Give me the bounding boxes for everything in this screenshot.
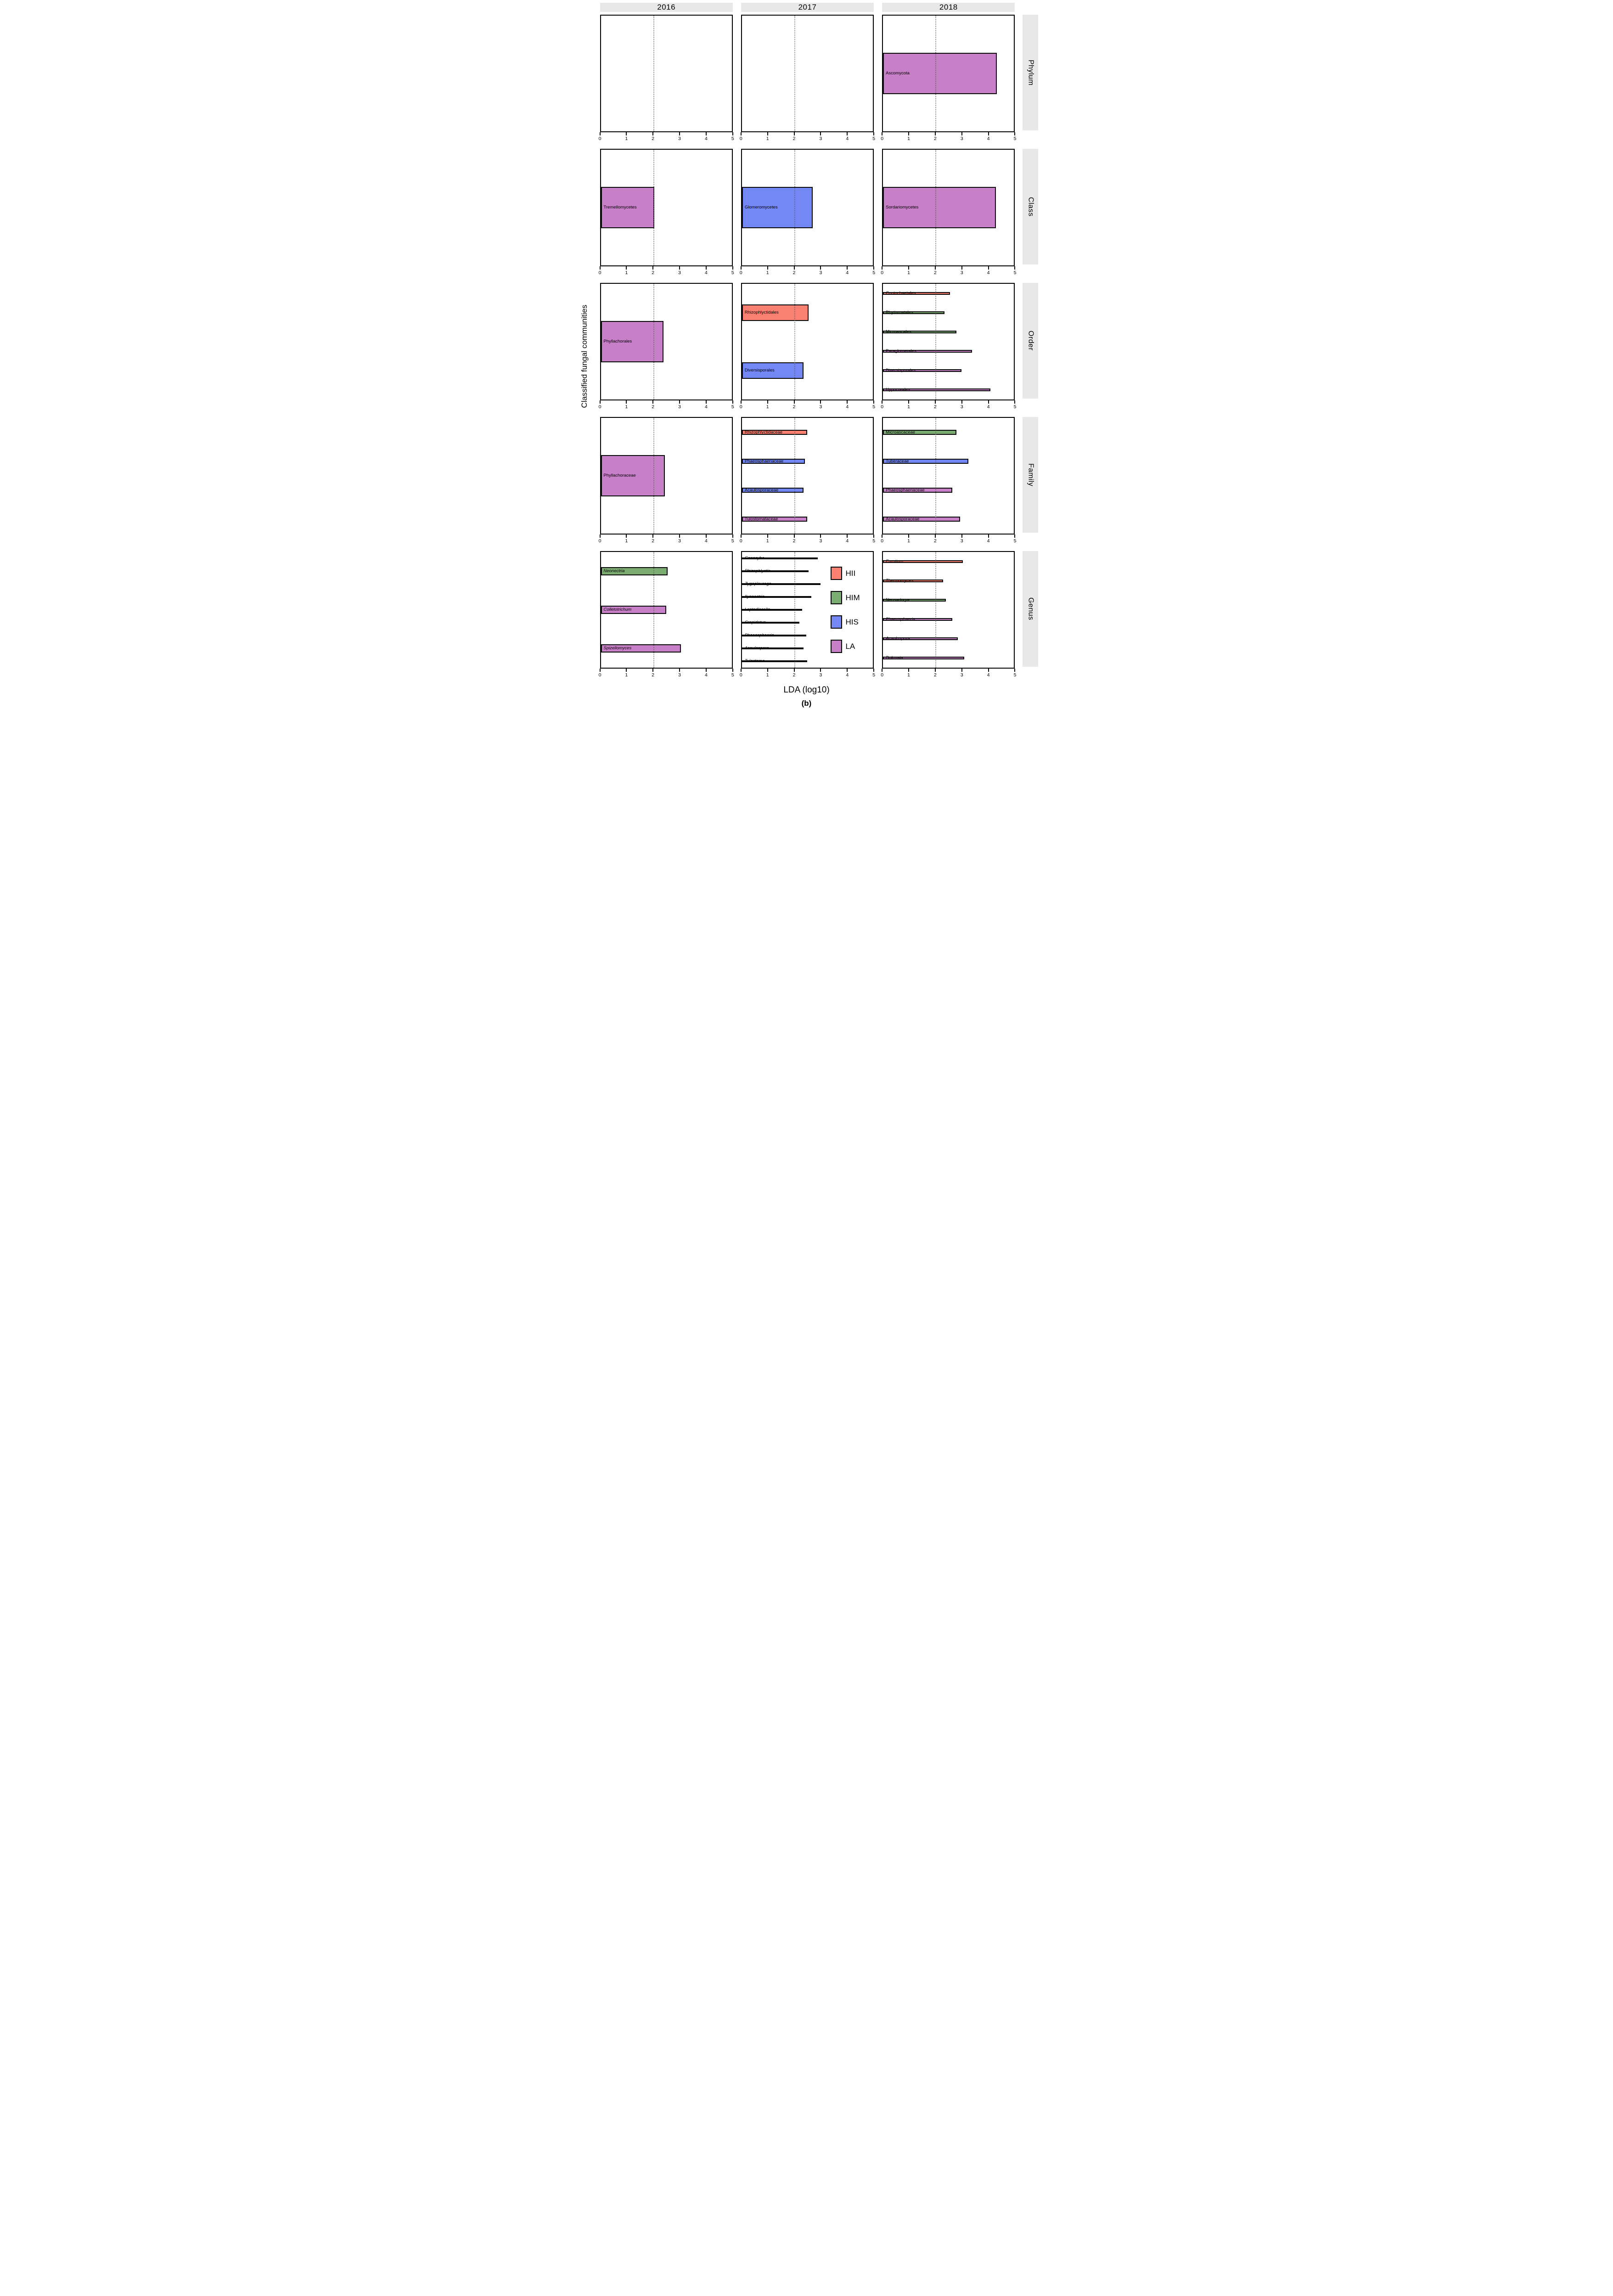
axis-tick-label: 5 xyxy=(1014,136,1017,141)
bar-tremellomycetes: Tremellomycetes xyxy=(601,187,655,229)
panel-order-2018: ConiochaetalesRhytismatalesMicroascalesP… xyxy=(882,283,1015,412)
bar-label: Paraglomerales xyxy=(884,349,916,354)
panel-class-2016: Tremellomycetes012345 xyxy=(600,149,733,278)
legend-item-la: LA xyxy=(831,640,860,653)
axis-tick xyxy=(1014,669,1015,672)
x-axis: 012345 xyxy=(882,266,1015,278)
axis-tick xyxy=(732,669,733,672)
axis-tick xyxy=(652,132,653,135)
x-axis: 012345 xyxy=(741,266,874,278)
bar-label: Acaulospora xyxy=(743,646,769,651)
axis-tick-label: 3 xyxy=(961,404,963,410)
legend-item-his: HIS xyxy=(831,615,860,629)
bar-label: Rhytismatales xyxy=(884,310,913,315)
bar-label: Acaulospora xyxy=(884,636,910,641)
axis-tick-label: 0 xyxy=(599,672,601,678)
bar-microascales: Microascales xyxy=(883,331,956,333)
axis-tick xyxy=(820,132,821,135)
axis-tick xyxy=(767,132,768,135)
axis-tick xyxy=(873,400,874,404)
axis-tick-label: 5 xyxy=(872,538,875,544)
axis-tick-label: 5 xyxy=(731,672,734,678)
axis-tick xyxy=(600,535,601,538)
bar-label: Phyllachoraceae xyxy=(602,473,636,478)
bar-label: Coniochaetales xyxy=(884,291,916,296)
axis-tick xyxy=(847,132,848,135)
axis-tick xyxy=(935,266,936,270)
bar-leptodiscella: Leptodiscella xyxy=(742,609,802,611)
bar-phyllachorales: Phyllachorales xyxy=(601,321,664,363)
axis-tick xyxy=(935,669,936,672)
bar-ilyonectria: Ilyonectria xyxy=(742,596,811,598)
bar-rhizophlyctidaceae: Rhizophlyctidaceae xyxy=(742,430,808,435)
axis-tick-label: 2 xyxy=(934,404,937,410)
axis-tick-label: 1 xyxy=(625,538,628,544)
axis-tick xyxy=(741,535,742,538)
bar-label: Crepidotus xyxy=(743,620,766,625)
axis-tick xyxy=(652,535,653,538)
axis-tick xyxy=(600,400,601,404)
panel-order-2016: Phyllachorales012345 xyxy=(600,283,733,412)
axis-tick-label: 1 xyxy=(907,404,910,410)
legend-swatch xyxy=(831,640,842,653)
axis-tick-label: 3 xyxy=(678,672,681,678)
axis-tick xyxy=(706,535,707,538)
bar-label: Hypocreales xyxy=(884,388,910,392)
axis-tick xyxy=(794,669,795,672)
bar-label: Zygopleurage xyxy=(743,582,771,586)
bar-tulostoma: Tulostoma xyxy=(742,660,808,662)
bar-phaeosphaeriaceae: Phaeosphaeriaceae xyxy=(883,488,952,493)
axis-tick-label: 1 xyxy=(625,270,628,276)
axis-tick xyxy=(961,535,962,538)
axis-tick-label: 5 xyxy=(731,404,734,410)
bar-label: Conocybe xyxy=(743,556,764,561)
axis-tick xyxy=(935,535,936,538)
bar-label: Tulostomataceae xyxy=(743,517,778,522)
plot-area: NeonectriaColletotrichumSpizellomyces xyxy=(600,551,733,669)
axis-tick-label: 4 xyxy=(705,270,708,276)
axis-tick xyxy=(741,266,742,270)
bar-label: Rhizophlyctidales xyxy=(743,310,779,315)
axis-tick xyxy=(794,132,795,135)
panel-class-2018: Sordariomycetes012345 xyxy=(882,149,1015,278)
bar-label: Glomeromycetes xyxy=(743,205,778,210)
axis-tick xyxy=(935,132,936,135)
axis-tick-label: 2 xyxy=(934,538,937,544)
reference-line xyxy=(653,552,654,668)
bar-label: Ascomycota xyxy=(884,71,910,76)
bar-tuberaceae: Tuberaceae xyxy=(883,459,968,464)
axis-tick xyxy=(988,669,989,672)
axis-tick-label: 1 xyxy=(907,538,910,544)
x-axis: 012345 xyxy=(600,669,733,681)
axis-tick-label: 1 xyxy=(766,538,769,544)
panel-phylum-2017: 012345 xyxy=(741,15,874,144)
axis-tick-label: 0 xyxy=(740,270,742,276)
axis-tick-label: 1 xyxy=(625,136,628,141)
bar-label: Neosartorya xyxy=(884,598,910,602)
axis-tick-label: 5 xyxy=(1014,404,1017,410)
axis-tick xyxy=(794,400,795,404)
axis-tick xyxy=(652,669,653,672)
axis-tick xyxy=(961,669,962,672)
axis-tick-label: 2 xyxy=(652,136,654,141)
plot-area: Tremellomycetes xyxy=(600,149,733,266)
axis-tick xyxy=(626,132,627,135)
axis-tick xyxy=(767,266,768,270)
axis-tick-label: 5 xyxy=(731,136,734,141)
axis-tick xyxy=(820,266,821,270)
bar-crepidotus: Crepidotus xyxy=(742,622,800,624)
axis-tick-label: 1 xyxy=(766,404,769,410)
facet-row-strip-phylum: Phylum xyxy=(1023,15,1038,130)
axis-tick-label: 1 xyxy=(766,270,769,276)
plot-area: EurotiumThermomycesNeosartoryaPhaeosphae… xyxy=(882,551,1015,669)
axis-tick xyxy=(626,266,627,270)
axis-tick-label: 4 xyxy=(705,672,708,678)
bar-dokmaia: Dokmaia xyxy=(883,657,964,659)
bar-phaeosphaeria: Phaeosphaeria xyxy=(742,635,806,636)
axis-tick xyxy=(741,400,742,404)
axis-tick xyxy=(679,266,680,270)
axis-tick xyxy=(988,535,989,538)
axis-tick-label: 3 xyxy=(961,538,963,544)
plot-area: MicroascaceaeTuberaceaePhaeosphaeriaceae… xyxy=(882,417,1015,535)
panel-family-2018: MicroascaceaeTuberaceaePhaeosphaeriaceae… xyxy=(882,417,1015,546)
axis-tick xyxy=(1014,400,1015,404)
reference-line xyxy=(794,16,795,131)
axis-tick-label: 1 xyxy=(766,136,769,141)
facet-row-strip-genus: Genus xyxy=(1023,551,1038,667)
axis-tick-label: 1 xyxy=(766,672,769,678)
legend-label: LA xyxy=(845,642,855,651)
axis-tick-label: 4 xyxy=(846,672,849,678)
lefse-facet-figure: Classified fungal communities 2016201720… xyxy=(575,0,1039,713)
axis-tick xyxy=(679,535,680,538)
axis-tick xyxy=(732,400,733,404)
bar-colletotrichum: Colletotrichum xyxy=(601,606,667,614)
axis-tick xyxy=(706,266,707,270)
x-axis: 012345 xyxy=(882,132,1015,144)
legend-item-him: HIM xyxy=(831,591,860,604)
figure-caption: (b) xyxy=(575,699,1039,708)
axis-tick xyxy=(732,535,733,538)
axis-tick xyxy=(626,535,627,538)
axis-tick xyxy=(961,266,962,270)
bar-thermomyces: Thermomyces xyxy=(883,580,943,582)
axis-tick-label: 0 xyxy=(740,538,742,544)
axis-tick-label: 4 xyxy=(705,404,708,410)
axis-tick xyxy=(882,535,882,538)
axis-tick-label: 2 xyxy=(793,270,796,276)
reference-line xyxy=(935,16,936,131)
reference-line xyxy=(935,150,936,265)
axis-tick xyxy=(820,535,821,538)
panel-family-2016: Phyllachoraceae012345 xyxy=(600,417,733,546)
axis-tick-label: 4 xyxy=(846,538,849,544)
axis-tick-label: 0 xyxy=(740,404,742,410)
bar-label: Colletotrichum xyxy=(602,608,632,612)
reference-line xyxy=(653,150,654,265)
axis-tick xyxy=(847,669,848,672)
bar-label: Leptodiscella xyxy=(743,608,770,612)
axis-tick-label: 3 xyxy=(820,404,822,410)
x-axis: 012345 xyxy=(741,400,874,412)
axis-tick xyxy=(882,669,882,672)
facet-column-headers: 201620172018 xyxy=(575,3,1039,12)
axis-tick xyxy=(988,266,989,270)
facet-row-strip-order: Order xyxy=(1023,283,1038,399)
axis-tick-label: 2 xyxy=(793,672,796,678)
bar-label: Tuberaceae xyxy=(884,459,909,464)
facet-row-order: Phyllachorales012345RhizophlyctidalesDiv… xyxy=(575,283,1039,412)
bar-label: Neonectria xyxy=(602,569,625,574)
bar-rhizophlyctidales: Rhizophlyctidales xyxy=(742,304,809,321)
axis-tick-label: 3 xyxy=(678,270,681,276)
x-axis: 012345 xyxy=(882,669,1015,681)
axis-tick xyxy=(600,669,601,672)
axis-tick xyxy=(706,132,707,135)
x-axis: 012345 xyxy=(600,400,733,412)
axis-tick-label: 4 xyxy=(987,672,990,678)
axis-tick-label: 0 xyxy=(881,270,883,276)
facet-row-strip-family: Family xyxy=(1023,417,1038,533)
axis-tick-label: 2 xyxy=(934,136,937,141)
axis-tick xyxy=(847,535,848,538)
bar-conocybe: Conocybe xyxy=(742,557,818,559)
x-axis: 012345 xyxy=(600,132,733,144)
facet-header-2016: 2016 xyxy=(600,3,733,12)
axis-tick-label: 4 xyxy=(987,270,990,276)
facet-header-2018: 2018 xyxy=(882,3,1015,12)
panel-genus-2018: EurotiumThermomycesNeosartoryaPhaeosphae… xyxy=(882,551,1015,681)
bar-hypocreales: Hypocreales xyxy=(883,388,990,391)
legend-swatch xyxy=(831,591,842,604)
facet-row-strip-class: Class xyxy=(1023,149,1038,264)
axis-tick-label: 1 xyxy=(907,270,910,276)
axis-tick-label: 0 xyxy=(740,136,742,141)
reference-line xyxy=(794,552,795,668)
reference-line xyxy=(935,418,936,534)
reference-line xyxy=(794,284,795,400)
axis-tick-label: 0 xyxy=(881,538,883,544)
axis-tick-label: 3 xyxy=(961,136,963,141)
panel-order-2017: RhizophlyctidalesDiversisporales012345 xyxy=(741,283,874,412)
bar-sordariomycetes: Sordariomycetes xyxy=(883,187,995,229)
reference-line xyxy=(653,284,654,400)
axis-tick xyxy=(1014,266,1015,270)
panel-phylum-2018: Ascomycota012345 xyxy=(882,15,1015,144)
reference-line xyxy=(935,552,936,668)
axis-tick xyxy=(741,669,742,672)
axis-tick xyxy=(767,535,768,538)
bar-tulostomataceae: Tulostomataceae xyxy=(742,517,808,522)
axis-tick xyxy=(882,400,882,404)
axis-tick-label: 1 xyxy=(907,672,910,678)
axis-tick xyxy=(706,400,707,404)
reference-line xyxy=(794,418,795,534)
axis-tick xyxy=(935,400,936,404)
axis-tick xyxy=(732,266,733,270)
axis-tick xyxy=(1014,535,1015,538)
reference-line xyxy=(653,16,654,131)
x-axis-label: LDA (log10) xyxy=(575,685,1039,695)
axis-tick xyxy=(961,400,962,404)
axis-tick-label: 5 xyxy=(872,672,875,678)
plot-area xyxy=(600,15,733,132)
axis-tick-label: 2 xyxy=(793,538,796,544)
axis-tick xyxy=(988,132,989,135)
bar-label: Diversisporales xyxy=(884,368,916,373)
facet-row-genus: NeonectriaColletotrichumSpizellomyces012… xyxy=(575,551,1039,681)
axis-tick-label: 5 xyxy=(1014,270,1017,276)
y-axis-label: Classified fungal communities xyxy=(574,305,595,408)
bar-label: Rhizophlyctis xyxy=(743,569,770,574)
legend-label: HIS xyxy=(845,618,858,627)
plot-area xyxy=(741,15,874,132)
axis-tick-label: 4 xyxy=(987,404,990,410)
axis-tick xyxy=(626,400,627,404)
bar-label: Diversisporales xyxy=(743,368,775,373)
x-axis: 012345 xyxy=(600,535,733,546)
plot-area: ConocybeRhizophlyctisZygopleurageIlyonec… xyxy=(741,551,874,669)
axis-tick-label: 2 xyxy=(793,404,796,410)
bar-label: Microascaceae xyxy=(884,430,915,435)
bar-label: Spizellomyces xyxy=(602,646,632,651)
axis-tick xyxy=(908,132,909,135)
axis-tick xyxy=(679,132,680,135)
axis-tick xyxy=(626,669,627,672)
axis-tick xyxy=(873,266,874,270)
axis-tick-label: 5 xyxy=(1014,672,1017,678)
bar-glomeromycetes: Glomeromycetes xyxy=(742,187,813,229)
bar-phaeosphaeria: Phaeosphaeria xyxy=(883,618,952,621)
plot-area: Ascomycota xyxy=(882,15,1015,132)
axis-tick xyxy=(767,669,768,672)
axis-tick-label: 3 xyxy=(820,672,822,678)
bar-acaulosporaceae: Acaulosporaceae xyxy=(883,517,960,522)
axis-tick xyxy=(741,132,742,135)
bar-neonectria: Neonectria xyxy=(601,567,668,576)
bar-coniochaetales: Coniochaetales xyxy=(883,292,950,295)
axis-tick-label: 4 xyxy=(705,136,708,141)
bar-label: Acaulosporaceae xyxy=(743,488,778,493)
axis-tick xyxy=(908,535,909,538)
facet-header-2017: 2017 xyxy=(741,3,874,12)
legend-label: HIM xyxy=(845,593,860,602)
plot-area: Glomeromycetes xyxy=(741,149,874,266)
axis-tick-label: 2 xyxy=(934,270,937,276)
axis-tick xyxy=(600,132,601,135)
axis-tick-label: 4 xyxy=(987,538,990,544)
axis-tick-label: 5 xyxy=(872,270,875,276)
axis-tick xyxy=(882,266,882,270)
axis-tick-label: 5 xyxy=(1014,538,1017,544)
axis-tick-label: 0 xyxy=(881,136,883,141)
axis-tick xyxy=(847,266,848,270)
axis-tick xyxy=(908,266,909,270)
panel-genus-2017: ConocybeRhizophlyctisZygopleurageIlyonec… xyxy=(741,551,874,681)
axis-tick-label: 2 xyxy=(934,672,937,678)
bar-label: Tremellomycetes xyxy=(602,205,637,210)
axis-tick-label: 2 xyxy=(652,538,654,544)
axis-tick-label: 0 xyxy=(599,136,601,141)
x-axis: 012345 xyxy=(600,266,733,278)
axis-tick-label: 3 xyxy=(678,538,681,544)
bar-label: Phaeosphaeria xyxy=(884,617,915,622)
axis-tick-label: 1 xyxy=(907,136,910,141)
bar-diversisporales: Diversisporales xyxy=(883,369,961,372)
plot-area: ConiochaetalesRhytismatalesMicroascalesP… xyxy=(882,283,1015,400)
plot-area: Sordariomycetes xyxy=(882,149,1015,266)
bar-neosartorya: Neosartorya xyxy=(883,599,946,602)
axis-tick-label: 4 xyxy=(987,136,990,141)
axis-tick-label: 2 xyxy=(652,270,654,276)
panel-family-2017: RhizophlyctidaceaePhaeosphaeriaceaeAcaul… xyxy=(741,417,874,546)
axis-tick xyxy=(600,266,601,270)
axis-tick-label: 0 xyxy=(881,672,883,678)
axis-tick-label: 1 xyxy=(625,404,628,410)
plot-area: Phyllachoraceae xyxy=(600,417,733,535)
bar-label: Phyllachorales xyxy=(602,339,632,344)
axis-tick-label: 4 xyxy=(846,404,849,410)
axis-tick-label: 4 xyxy=(846,270,849,276)
axis-tick xyxy=(794,266,795,270)
axis-tick xyxy=(847,400,848,404)
legend-swatch xyxy=(831,615,842,629)
facet-row-phylum: 012345012345Ascomycota012345Phylum xyxy=(575,15,1039,144)
axis-tick xyxy=(961,132,962,135)
x-axis: 012345 xyxy=(741,669,874,681)
legend-label: HII xyxy=(845,569,855,578)
axis-tick xyxy=(706,669,707,672)
bar-phyllachoraceae: Phyllachoraceae xyxy=(601,455,665,497)
legend: HIIHIMHISLA xyxy=(831,567,860,653)
bar-acaulospora: Acaulospora xyxy=(883,637,958,640)
plot-area: RhizophlyctidaceaePhaeosphaeriaceaeAcaul… xyxy=(741,417,874,535)
axis-tick xyxy=(873,132,874,135)
axis-tick xyxy=(794,535,795,538)
bar-zygopleurage: Zygopleurage xyxy=(742,583,821,585)
axis-tick-label: 2 xyxy=(652,404,654,410)
axis-tick-label: 3 xyxy=(961,672,963,678)
x-axis: 012345 xyxy=(741,132,874,144)
bar-microascaceae: Microascaceae xyxy=(883,430,956,435)
axis-tick xyxy=(882,132,882,135)
axis-tick-label: 4 xyxy=(846,136,849,141)
x-axis: 012345 xyxy=(741,535,874,546)
reference-line xyxy=(935,284,936,400)
bar-rhizophlyctis: Rhizophlyctis xyxy=(742,570,809,572)
bar-ascomycota: Ascomycota xyxy=(883,53,997,95)
panel-phylum-2016: 012345 xyxy=(600,15,733,144)
axis-tick xyxy=(652,266,653,270)
axis-tick xyxy=(820,400,821,404)
axis-tick xyxy=(908,669,909,672)
axis-tick-label: 2 xyxy=(793,136,796,141)
bar-label: Ilyonectria xyxy=(743,595,764,599)
legend-swatch xyxy=(831,567,842,580)
bar-label: Thermomyces xyxy=(884,579,913,583)
axis-tick xyxy=(652,400,653,404)
axis-tick xyxy=(988,400,989,404)
bar-eurotium: Eurotium xyxy=(883,560,963,563)
axis-tick-label: 0 xyxy=(599,404,601,410)
bar-label: Eurotium xyxy=(884,559,903,564)
bar-paraglomerales: Paraglomerales xyxy=(883,350,972,353)
axis-tick xyxy=(732,132,733,135)
